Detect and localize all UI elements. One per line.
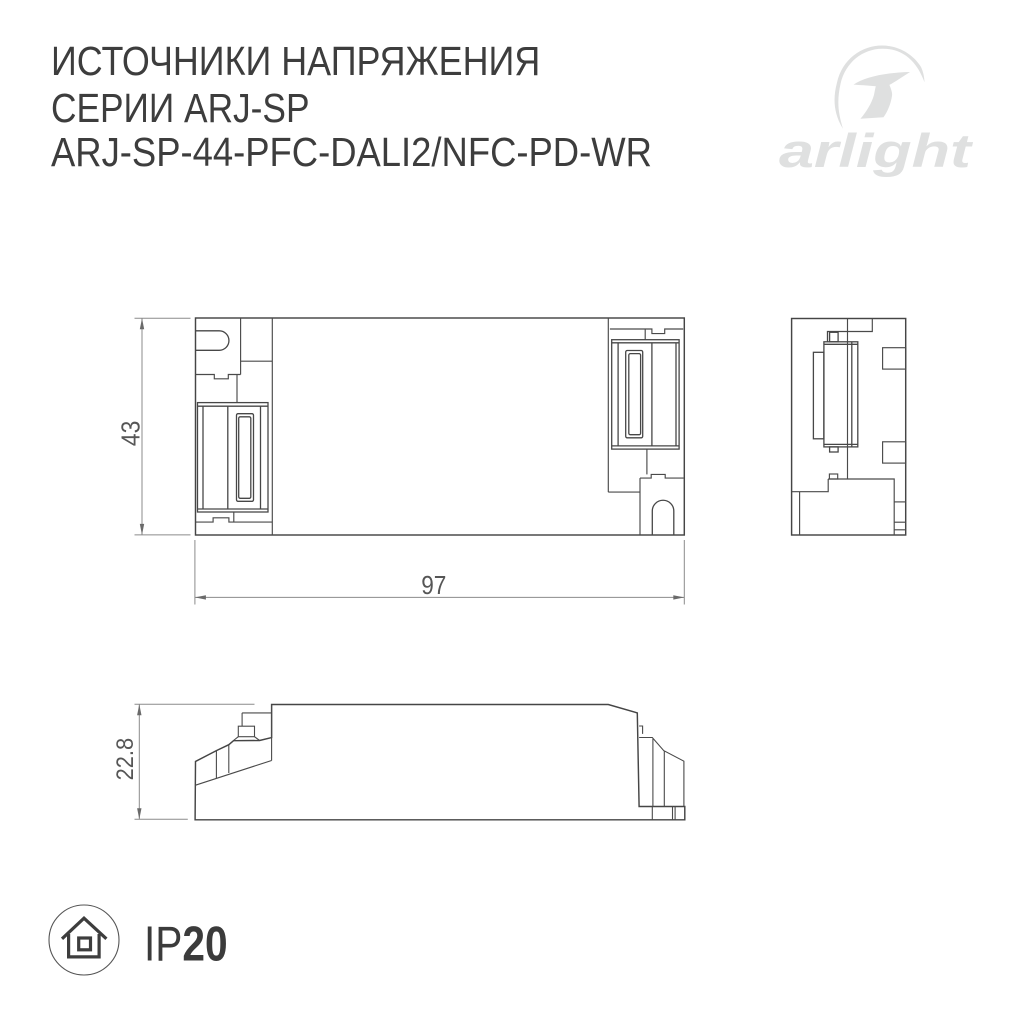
svg-text:22.8: 22.8 xyxy=(111,738,138,781)
svg-text:arlight: arlight xyxy=(779,125,974,178)
svg-text:IP20: IP20 xyxy=(144,916,228,971)
svg-text:97: 97 xyxy=(421,571,446,600)
svg-text:43: 43 xyxy=(117,421,146,446)
